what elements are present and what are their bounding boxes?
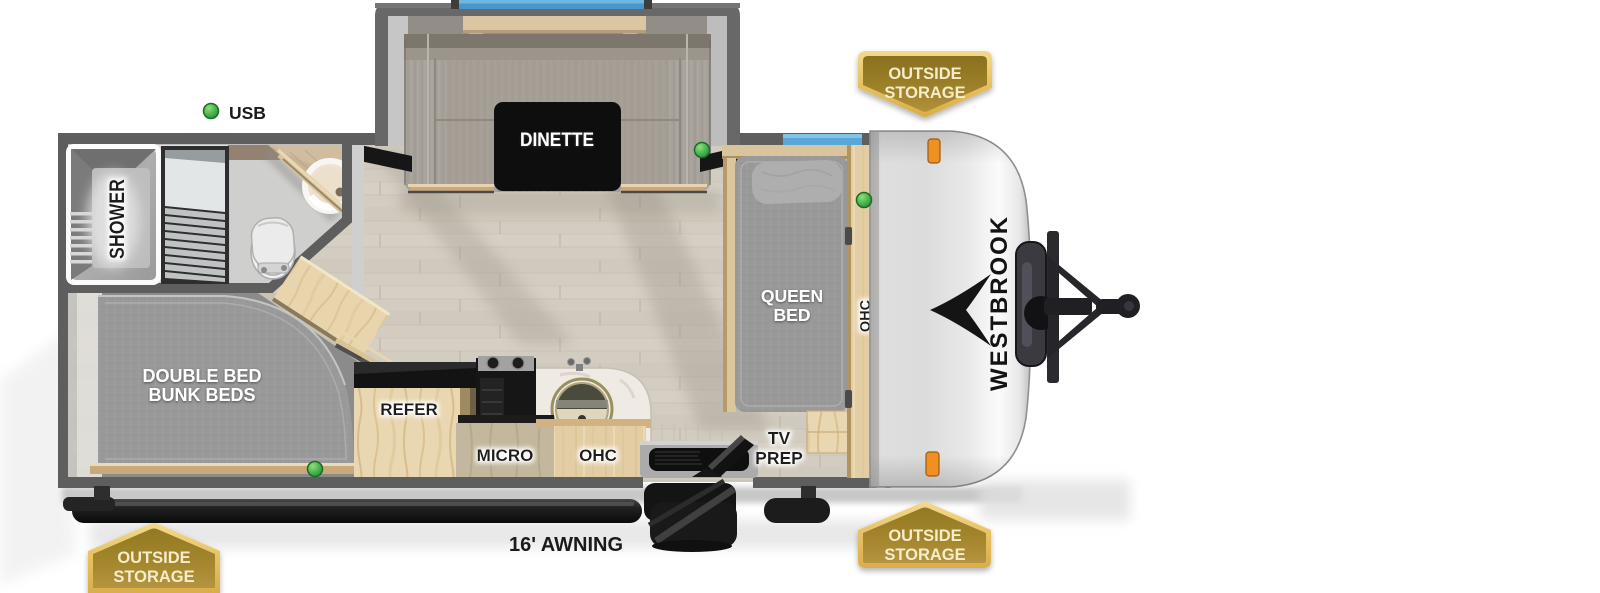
- svg-text:MICRO: MICRO: [477, 446, 534, 465]
- svg-text:STORAGE: STORAGE: [113, 568, 194, 586]
- svg-text:OUTSIDE: OUTSIDE: [888, 527, 961, 545]
- svg-text:OUTSIDE: OUTSIDE: [888, 65, 961, 83]
- svg-text:DINETTE: DINETTE: [520, 129, 594, 151]
- svg-text:WESTBROOK: WESTBROOK: [986, 215, 1013, 391]
- svg-text:USB: USB: [229, 103, 266, 123]
- svg-text:SHOWER: SHOWER: [106, 179, 129, 259]
- svg-text:STORAGE: STORAGE: [884, 84, 965, 102]
- svg-text:QUEEN: QUEEN: [761, 286, 823, 306]
- svg-text:OUTSIDE: OUTSIDE: [117, 549, 190, 567]
- svg-text:BED: BED: [774, 305, 811, 325]
- svg-text:DOUBLE BED: DOUBLE BED: [142, 366, 261, 386]
- svg-text:PREP: PREP: [755, 448, 803, 468]
- svg-text:BUNK BEDS: BUNK BEDS: [148, 385, 255, 405]
- svg-text:16' AWNING: 16' AWNING: [509, 534, 623, 556]
- svg-text:TV: TV: [768, 428, 791, 448]
- svg-text:OHC: OHC: [579, 446, 617, 465]
- svg-text:REFER: REFER: [380, 400, 438, 419]
- svg-text:STORAGE: STORAGE: [884, 546, 965, 564]
